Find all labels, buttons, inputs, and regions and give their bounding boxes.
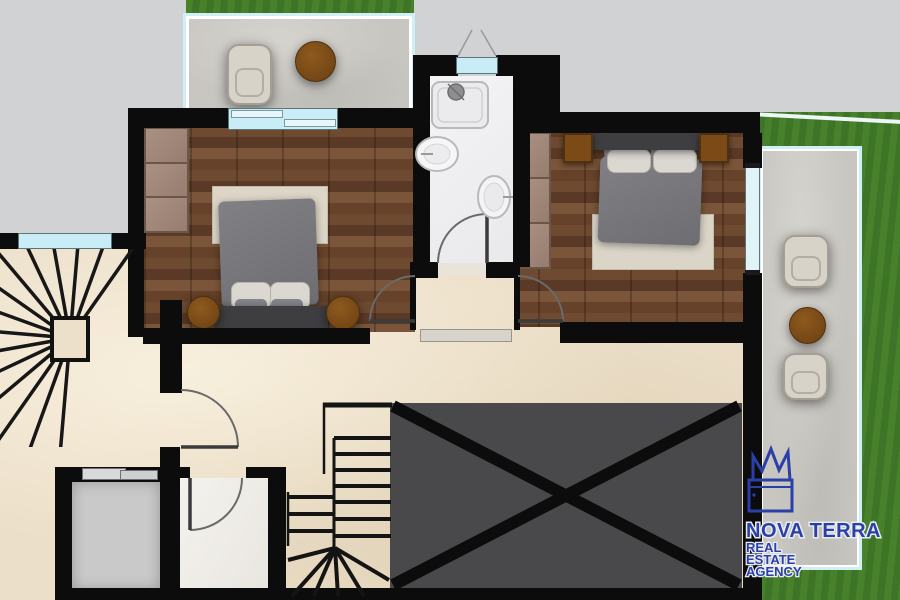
toilet [478, 176, 513, 218]
void-cross-icon [393, 406, 739, 585]
floor-plan-canvas: NOVA TERRA REAL ESTATE AGENCY [0, 0, 900, 600]
agency-logo: NOVA TERRA REAL ESTATE AGENCY [746, 449, 881, 579]
shower [432, 82, 488, 128]
door-swings [181, 214, 563, 530]
staircase-down [288, 403, 392, 596]
brand-name: NOVA TERRA [746, 520, 881, 542]
window-swing-lines [458, 30, 496, 56]
plan-linework: NOVA TERRA REAL ESTATE AGENCY [0, 0, 900, 600]
washbasin [416, 137, 458, 171]
winder-staircase [0, 139, 185, 537]
brand-tagline-line: AGENCY [746, 564, 802, 579]
crown-castle-sketch-icon [753, 449, 790, 480]
stair-newel-post [52, 318, 88, 360]
